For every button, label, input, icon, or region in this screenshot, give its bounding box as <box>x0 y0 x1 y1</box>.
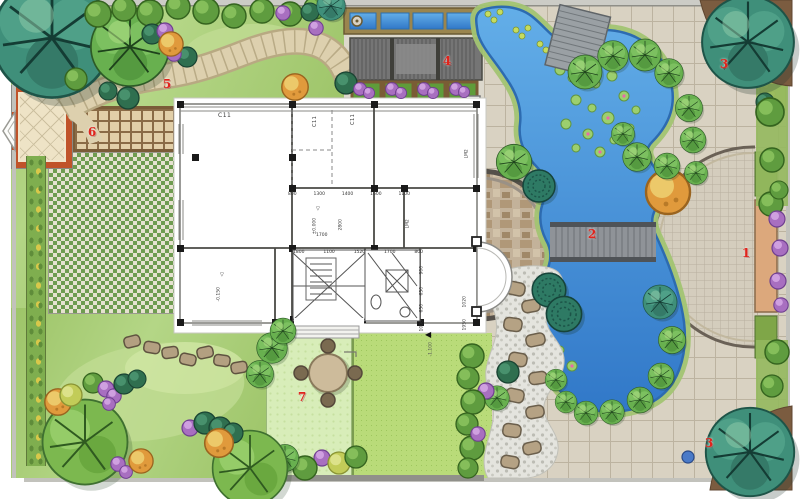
stairs <box>293 250 365 321</box>
dimension-row-mid: 18001100 15201700 800 <box>293 251 423 256</box>
dim-1020: 1020 <box>464 296 469 307</box>
elevation-main: ±0.000 <box>314 218 319 235</box>
elevation-lawn: -1.100 <box>430 342 435 357</box>
marker-2: 2 <box>588 228 596 240</box>
house-floorplan <box>172 90 524 342</box>
elevation-flag-room: ▽ <box>220 272 224 278</box>
dim-900: 900 <box>421 266 426 275</box>
lawn-arrow-icon: ◀ <box>425 330 431 339</box>
dim-1700: 1700 <box>316 234 327 239</box>
marker-1: 1 <box>742 247 750 259</box>
entry-gate <box>3 112 15 150</box>
marker-7: 7 <box>298 391 306 403</box>
marker-4: 4 <box>443 55 451 67</box>
door-label-lm2-2: LM2 <box>466 149 471 158</box>
dim-1950: 1950 <box>464 319 469 330</box>
bay-window <box>472 237 512 316</box>
entrance-steps <box>294 318 364 338</box>
bathroom <box>365 250 420 321</box>
dim-2800: 2800 <box>340 219 345 230</box>
dim-650b: 650 <box>421 304 426 313</box>
marker-5: 5 <box>163 78 171 90</box>
window-label-c11-3: C11 <box>351 114 356 125</box>
marker-6: 6 <box>88 126 96 138</box>
marker-3-top: 3 <box>720 58 728 70</box>
dimension-row-top: 8001300 14001600 1100 <box>288 193 410 198</box>
pergola-structure <box>350 38 482 80</box>
main-bridge <box>550 222 656 262</box>
window-label-c11: C11 <box>218 113 231 119</box>
dim-650a: 650 <box>421 287 426 296</box>
water-channel <box>344 8 486 34</box>
door-label-lm2: LM2 <box>407 219 412 228</box>
elevation-flag-main: ▽ <box>316 206 320 212</box>
window-label-c11-2: C11 <box>313 116 318 127</box>
elevation-room: -0.150 <box>218 287 223 302</box>
marker-3-bottom: 3 <box>705 437 713 449</box>
